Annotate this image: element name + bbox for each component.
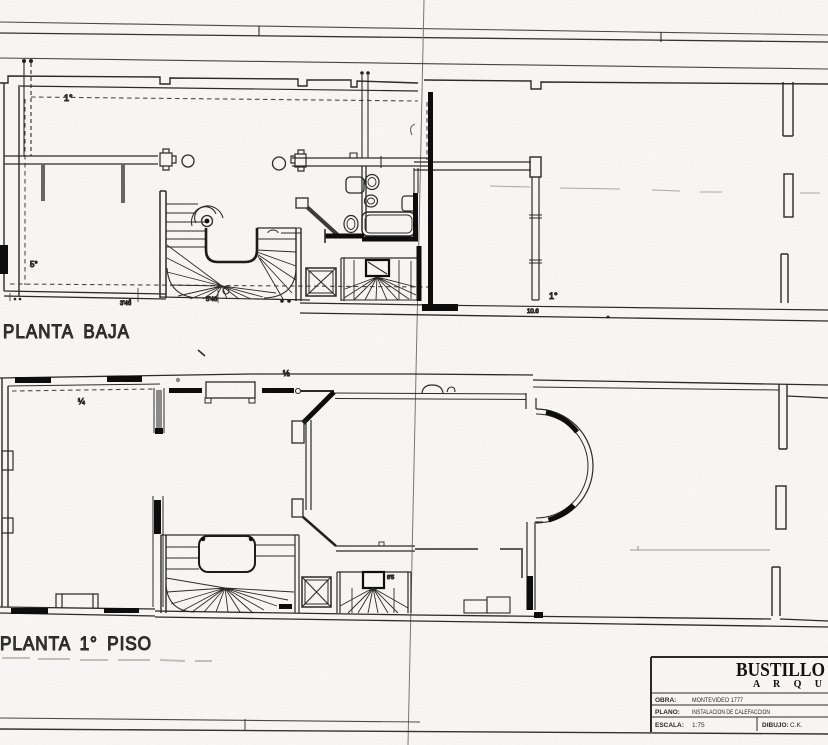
svg-text:PLANTA 1° PISO: PLANTA 1° PISO <box>0 634 152 655</box>
svg-text:5°: 5° <box>30 260 38 269</box>
svg-text:DIBUJO:: DIBUJO: <box>762 722 789 729</box>
svg-text:¼: ¼ <box>78 397 85 406</box>
svg-text:ESCALA:: ESCALA: <box>655 722 684 729</box>
svg-text:8'5: 8'5 <box>387 575 394 581</box>
svg-text:1°: 1° <box>64 93 73 103</box>
svg-text:10.6: 10.6 <box>527 309 539 315</box>
svg-text:MONTEVIDEO 1777: MONTEVIDEO 1777 <box>692 697 743 704</box>
svg-text:5'46: 5'46 <box>206 297 218 303</box>
svg-text:1:75: 1:75 <box>692 722 705 729</box>
svg-text:3'46: 3'46 <box>120 301 132 307</box>
svg-text:BUSTILLO: BUSTILLO <box>736 659 825 681</box>
svg-text:OBRA:: OBRA: <box>655 697 676 704</box>
svg-text:PLANTA BAJA: PLANTA BAJA <box>3 322 130 343</box>
svg-text:INSTALACION DE CALEFACCION: INSTALACION DE CALEFACCION <box>692 709 770 716</box>
svg-text:PLANO:: PLANO: <box>655 709 680 716</box>
svg-text:C.K.: C.K. <box>790 722 803 729</box>
svg-text:1°: 1° <box>549 291 558 301</box>
